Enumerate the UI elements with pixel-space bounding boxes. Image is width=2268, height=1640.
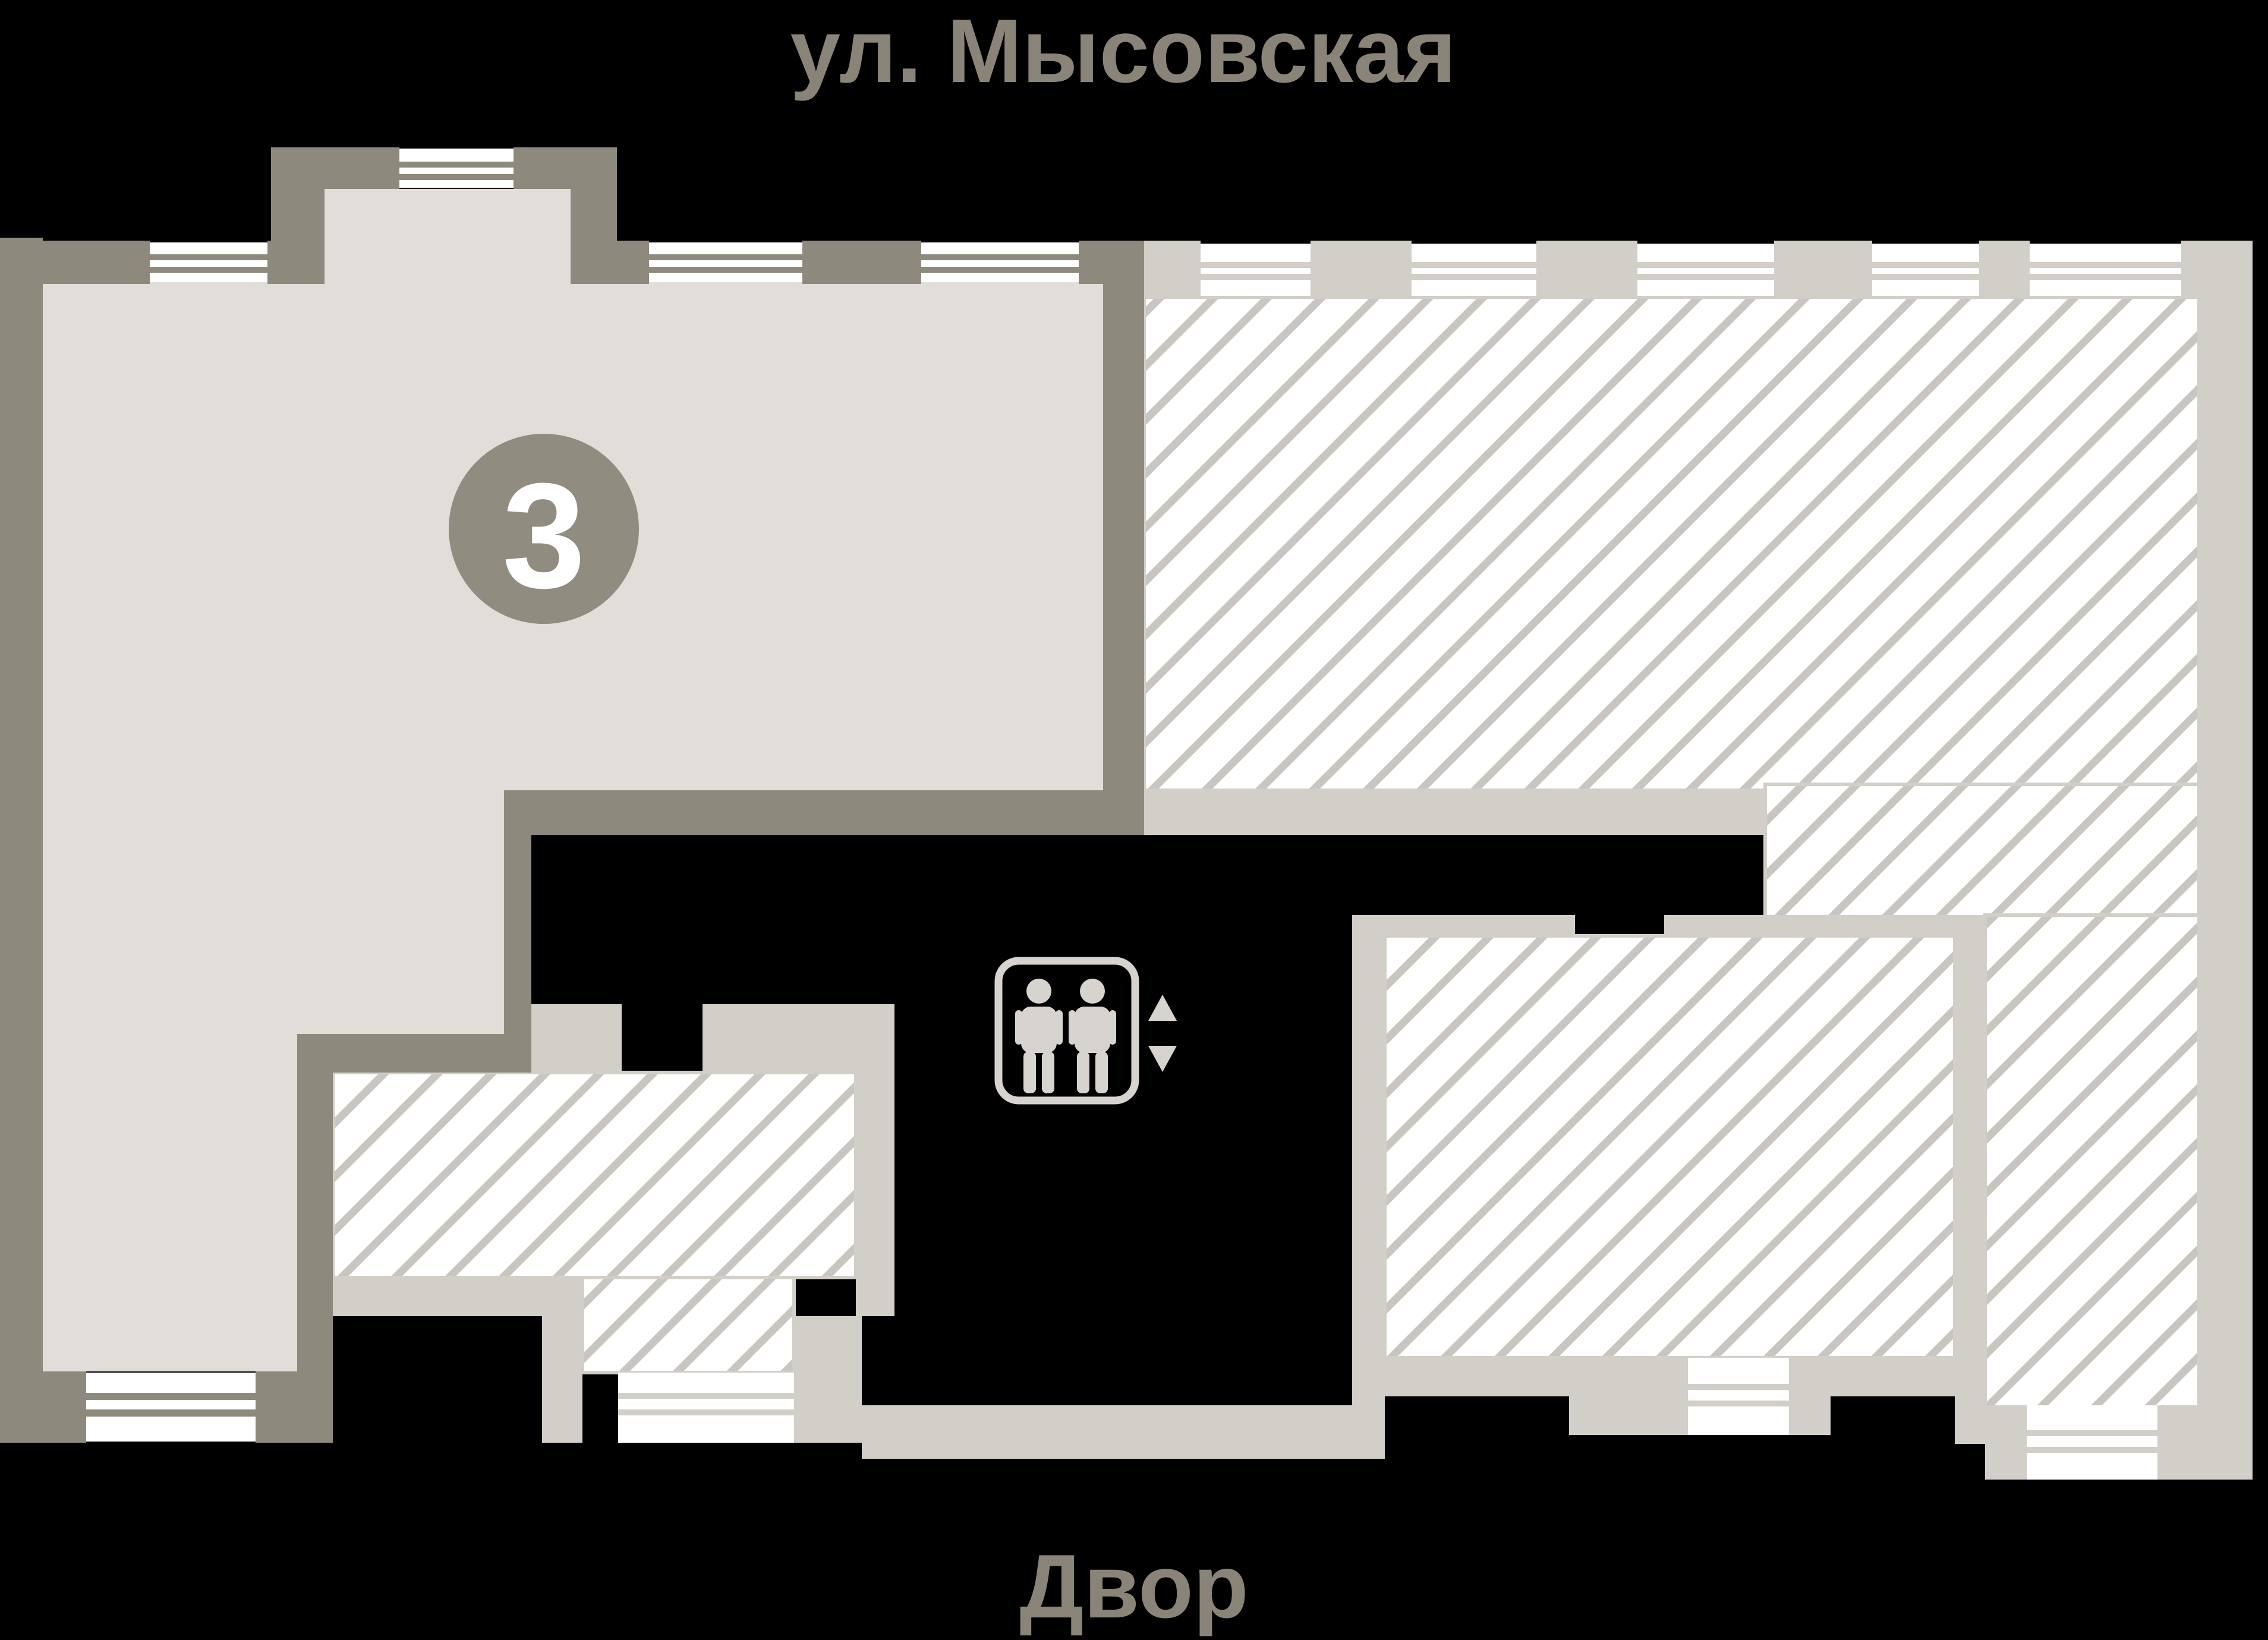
corridor bbox=[862, 1405, 1385, 1459]
wall bbox=[1789, 1358, 1831, 1435]
wall bbox=[1311, 241, 1412, 297]
person-icon bbox=[1069, 979, 1116, 1093]
unit-area bbox=[1144, 297, 2199, 790]
floor-plan: ул. Мысовская bbox=[0, 0, 2268, 1640]
triangle-up-icon bbox=[1148, 995, 1177, 1021]
window bbox=[921, 242, 1079, 282]
apartment-number-badge: 3 bbox=[449, 434, 639, 624]
floor-plan-viewport: ул. Мысовская bbox=[0, 0, 2268, 1640]
wall bbox=[1985, 1405, 2027, 1480]
wall bbox=[1955, 915, 1985, 1444]
wall bbox=[531, 1004, 622, 1073]
wall bbox=[2199, 241, 2253, 1444]
wall bbox=[1144, 241, 1201, 297]
wall bbox=[802, 241, 921, 284]
triangle-down-icon bbox=[1148, 1046, 1177, 1072]
elevator-people-icon bbox=[998, 961, 1177, 1100]
window bbox=[1872, 244, 1979, 296]
wall bbox=[1385, 1358, 1569, 1396]
wall bbox=[0, 1371, 86, 1443]
wall bbox=[514, 147, 617, 189]
unit-area bbox=[325, 189, 571, 308]
wall bbox=[1355, 915, 1575, 938]
wall bbox=[1831, 1358, 1955, 1396]
wall bbox=[1774, 241, 1872, 297]
unit-area bbox=[43, 1034, 297, 1371]
apartment-number: 3 bbox=[502, 453, 585, 620]
wall bbox=[1352, 915, 1385, 1444]
courtyard-label: Двор bbox=[1019, 1536, 1248, 1637]
window bbox=[2027, 1405, 2157, 1480]
window bbox=[399, 149, 514, 188]
wall bbox=[2157, 1405, 2253, 1480]
window bbox=[649, 242, 802, 282]
wall bbox=[571, 184, 617, 284]
unit-area bbox=[1765, 784, 2199, 918]
wall bbox=[1664, 915, 1985, 938]
wall bbox=[0, 241, 150, 284]
person-icon bbox=[1015, 979, 1063, 1093]
wall bbox=[1569, 1358, 1688, 1435]
wall bbox=[862, 1405, 1385, 1459]
wall bbox=[617, 241, 649, 284]
wall bbox=[794, 1316, 862, 1443]
neighbor-unit-bottom-center bbox=[1352, 915, 1985, 1444]
wall bbox=[504, 790, 531, 1073]
window bbox=[1412, 244, 1536, 296]
window bbox=[150, 242, 267, 282]
wall bbox=[282, 147, 399, 189]
unit-area bbox=[582, 1278, 794, 1373]
wall bbox=[856, 1004, 894, 1316]
wall bbox=[1979, 241, 2030, 297]
wall bbox=[504, 790, 1144, 835]
wall bbox=[1536, 241, 1637, 297]
window bbox=[86, 1373, 256, 1442]
unit-area bbox=[333, 1073, 856, 1278]
unit-area bbox=[1385, 936, 1955, 1358]
window bbox=[2030, 244, 2181, 296]
wall bbox=[542, 1278, 582, 1443]
street-label: ул. Мысовская bbox=[790, 1, 1457, 102]
window bbox=[1201, 244, 1311, 296]
window bbox=[1637, 244, 1774, 296]
wall bbox=[0, 238, 43, 1443]
unit-area bbox=[1985, 915, 2199, 1408]
unit-area bbox=[43, 790, 504, 1034]
wall bbox=[256, 1371, 333, 1443]
window bbox=[1688, 1358, 1789, 1435]
window bbox=[618, 1373, 794, 1443]
wall bbox=[1103, 241, 1144, 790]
wall bbox=[1144, 790, 1765, 835]
